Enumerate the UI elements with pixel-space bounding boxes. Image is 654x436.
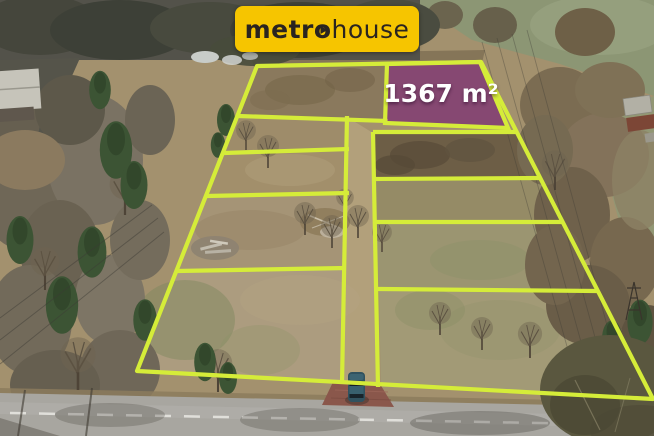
division-h3 — [206, 193, 349, 196]
logo-text-bold: metr — [245, 17, 314, 42]
brand-banner: metrohouse — [235, 6, 419, 52]
area-label: 1367 m² — [383, 79, 498, 108]
logo-text-light: house — [332, 17, 410, 42]
division-h4 — [177, 268, 346, 271]
aerial-listing-photo: 1367 m² metrohouse — [0, 0, 654, 436]
division-rh4 — [378, 289, 597, 291]
division-rh2 — [374, 178, 540, 179]
aerial-photo-canvas: 1367 m² — [0, 0, 654, 436]
brand-logo: metrohouse — [245, 17, 410, 42]
logo-o-arrow-icon: o — [314, 17, 332, 42]
